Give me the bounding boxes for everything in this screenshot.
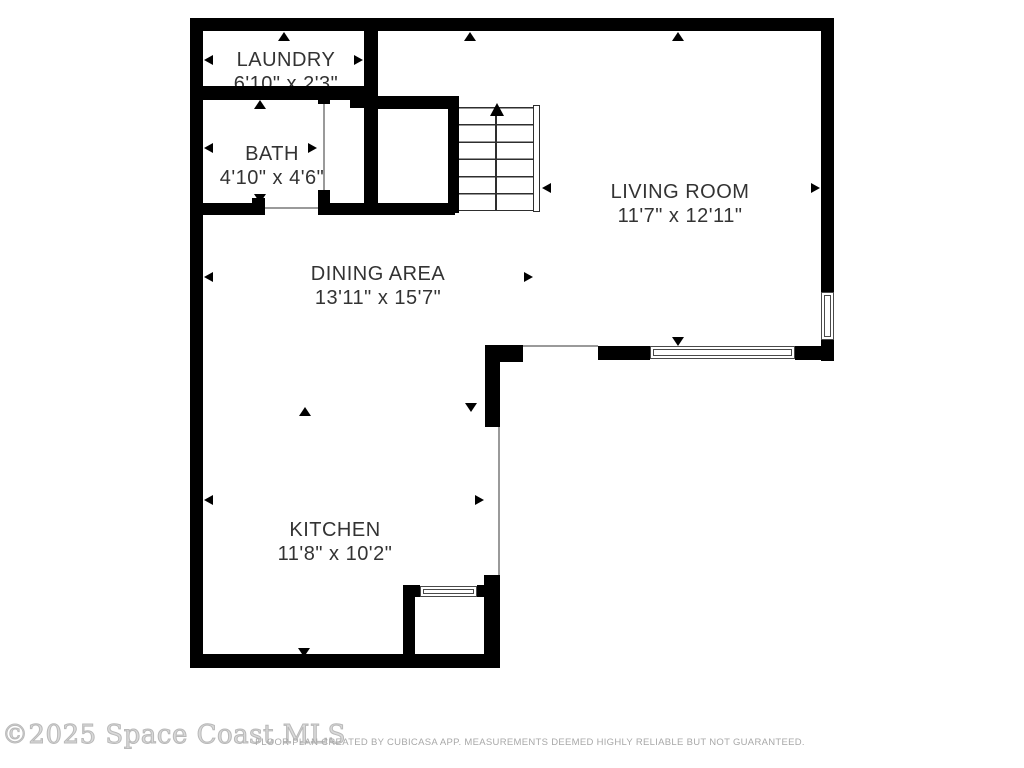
staircase-center-line bbox=[495, 107, 497, 210]
kitchen-right-wall-upper bbox=[485, 345, 500, 427]
measure-arrow-icon bbox=[524, 272, 533, 282]
stairs-up-arrow-icon bbox=[490, 103, 504, 116]
living-bottom-wall-right bbox=[795, 346, 834, 360]
entry-door-jamb-left bbox=[403, 585, 420, 597]
room-name: DINING AREA bbox=[311, 262, 445, 286]
window-pane bbox=[653, 349, 792, 356]
room-dimensions: 4'10" x 4'6" bbox=[220, 166, 325, 191]
measure-arrow-icon bbox=[465, 403, 477, 412]
measure-arrow-icon bbox=[811, 183, 820, 193]
staircase-handrail bbox=[533, 105, 540, 212]
closet-right-wall bbox=[364, 31, 378, 215]
living-bottom-wall-left bbox=[598, 346, 650, 360]
hall-bottom-wall bbox=[318, 203, 455, 215]
room-name: LIVING ROOM bbox=[611, 180, 750, 204]
room-label-bath: BATH 4'10" x 4'6" bbox=[220, 142, 325, 191]
staircase-treads bbox=[459, 107, 533, 211]
entry-sliding-door bbox=[420, 586, 477, 597]
closet-door-jamb-bottom bbox=[318, 190, 330, 204]
measure-arrow-icon bbox=[254, 100, 266, 109]
measure-arrow-icon bbox=[254, 194, 266, 203]
floor-plan-canvas: LAUNDRY 6'10" x 2'3" BATH 4'10" x 4'6" L… bbox=[0, 0, 1024, 768]
measure-arrow-icon bbox=[542, 183, 551, 193]
measure-arrow-icon bbox=[475, 495, 484, 505]
measure-arrow-icon bbox=[204, 143, 213, 153]
measure-arrow-icon bbox=[204, 495, 213, 505]
exterior-wall-top bbox=[190, 18, 834, 31]
exterior-wall-right-upper bbox=[821, 18, 834, 292]
measure-arrow-icon bbox=[672, 337, 684, 346]
exterior-wall-left bbox=[190, 18, 203, 668]
opening-line-kitchen-right bbox=[498, 427, 500, 576]
entry-door-jamb-right bbox=[477, 585, 490, 597]
bath-bottom-wall bbox=[190, 203, 252, 215]
room-name: LAUNDRY bbox=[234, 48, 339, 72]
room-label-kitchen: KITCHEN 11'8" x 10'2" bbox=[278, 518, 393, 567]
stair-hall-top-wall bbox=[377, 96, 458, 109]
room-label-living-room: LIVING ROOM 11'7" x 12'11" bbox=[611, 180, 750, 229]
room-dimensions: 11'8" x 10'2" bbox=[278, 542, 393, 567]
living-room-bottom-window bbox=[650, 346, 795, 359]
room-label-dining-area: DINING AREA 13'11" x 15'7" bbox=[311, 262, 445, 311]
measure-arrow-icon bbox=[298, 648, 310, 657]
room-name: KITCHEN bbox=[278, 518, 393, 542]
measure-arrow-icon bbox=[278, 32, 290, 41]
closet-door-jamb-top bbox=[318, 87, 330, 104]
measure-arrow-icon bbox=[204, 272, 213, 282]
stair-left-wall bbox=[448, 96, 459, 213]
measure-arrow-icon bbox=[464, 32, 476, 41]
exterior-wall-bottom bbox=[190, 654, 500, 668]
window-pane bbox=[824, 295, 831, 337]
disclaimer-text: FLOOR PLAN CREATED BY CUBICASA APP. MEAS… bbox=[255, 737, 805, 748]
measure-arrow-icon bbox=[299, 407, 311, 416]
measure-arrow-icon bbox=[204, 55, 213, 65]
room-name: BATH bbox=[220, 142, 325, 166]
living-room-right-window bbox=[821, 292, 834, 340]
measure-arrow-icon bbox=[672, 32, 684, 41]
door-pane bbox=[423, 589, 474, 594]
room-dimensions: 11'7" x 12'11" bbox=[611, 204, 750, 229]
room-dimensions: 13'11" x 15'7" bbox=[311, 286, 445, 311]
opening-line-living-bottom bbox=[521, 345, 598, 347]
bath-door-opening-line bbox=[265, 207, 318, 209]
laundry-bottom-wall-jamb bbox=[350, 86, 365, 108]
measure-arrow-icon bbox=[354, 55, 363, 65]
